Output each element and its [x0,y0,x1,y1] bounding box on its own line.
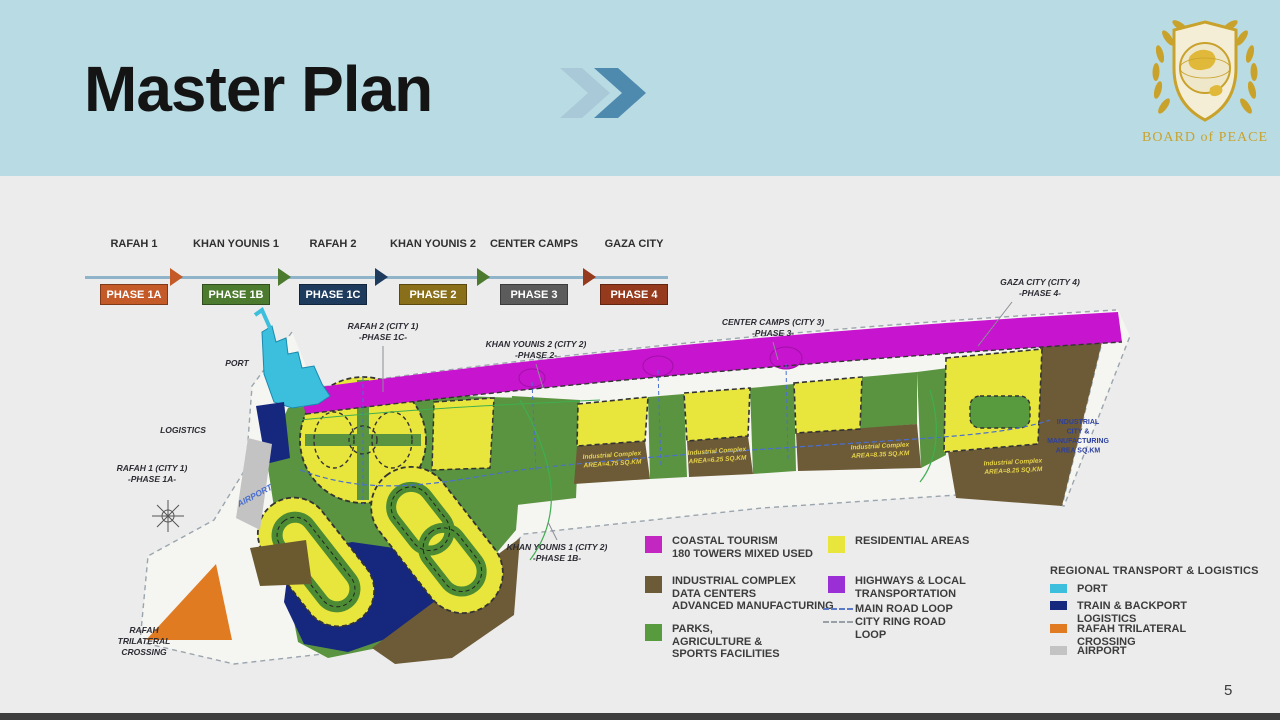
zone-olive-triangle [250,540,312,586]
legend-label: PORT [1077,583,1108,596]
legend-swatch [828,536,845,553]
timeline-arrow-icon [170,268,183,286]
compass-icon [152,500,184,532]
map-label-port: PORT [225,358,249,368]
legend-label: AIRPORT [1077,645,1127,658]
city-name: GAZA CITY [605,238,664,250]
header-band: Master Plan [0,0,1280,176]
zone-port [262,326,330,408]
timeline-arrow-icon [375,268,388,286]
map-label-logistics: LOGISTICS [160,425,206,435]
legend-swatch [828,576,845,593]
timeline-city-label: GAZA CITYCITY 4 [574,238,694,251]
city-name: RAFAH 1 [110,238,157,250]
chevron-right-icon [552,62,662,124]
legend-dash-sample [823,621,853,623]
legend-label: COASTAL TOURISM180 TOWERS MIXED USED [672,535,813,560]
legend-label: MAIN ROAD LOOP [855,603,953,616]
phase-badge: PHASE 1C [299,284,367,305]
bottom-bar [0,713,1280,720]
city-name: RAFAH 2 [309,238,356,250]
legend-label: RESIDENTIAL AREAS [855,535,969,548]
map-label-gaza-city: GAZA CITY (CITY 4)-PHASE 4- [1000,277,1080,298]
legend-swatch [645,536,662,553]
legend-dash-sample [823,608,853,610]
map-label-industrial-4: Industrial ComplexAREA=8.25 SQ.KM [983,457,1043,476]
phase-badge: PHASE 4 [600,284,668,305]
legend-label: TRAIN & BACKPORTLOGISTICS [1077,600,1187,625]
phase-badge: PHASE 1B [202,284,270,305]
page-number: 5 [1224,682,1232,699]
legend-label: CITY RING ROADLOOP [855,616,946,641]
phase-badge: PHASE 3 [500,284,568,305]
legend-label: HIGHWAYS & LOCALTRANSPORTATION [855,575,966,600]
zone-park-east [970,396,1030,428]
legend-swatch [1050,624,1067,633]
legend-label: PARKS,AGRICULTURE &SPORTS FACILITIES [672,623,780,661]
map-label-rafah2: RAFAH 2 (CITY 1)-PHASE 1C- [348,321,419,342]
legend-swatch [1050,584,1067,593]
legend-swatch [645,576,662,593]
slide: PORTLOGISTICSRAFAH 1 (CITY 1)-PHASE 1A-R… [0,0,1280,720]
timeline-arrow-icon [583,268,596,286]
phase-badge: PHASE 2 [399,284,467,305]
legend-swatch [645,624,662,641]
map-label-industrial-3: Industrial ComplexAREA=8.35 SQ.KM [850,441,910,460]
legend-label: INDUSTRIAL COMPLEXDATA CENTERSADVANCED M… [672,575,834,613]
board-of-peace-logo: BOARD of PEACE [1140,8,1270,158]
logo-caption: BOARD of PEACE [1142,130,1268,145]
map-label-rafah1: RAFAH 1 (CITY 1)-PHASE 1A- [117,463,188,484]
city-name: CENTER CAMPS [490,238,578,250]
timeline-arrow-icon [477,268,490,286]
port-breakwater [255,310,270,328]
legend-regional-title: REGIONAL TRANSPORT & LOGISTICS [1050,565,1259,577]
timeline-arrow-icon [278,268,291,286]
map-label-khan-younis-1: KHAN YOUNIS 1 (CITY 2)-PHASE 1B- [507,542,608,563]
legend-swatch [1050,646,1067,655]
legend-swatch [1050,601,1067,610]
city-name: KHAN YOUNIS 2 [390,238,476,250]
page-title: Master Plan [84,52,432,126]
city-name: KHAN YOUNIS 1 [193,238,279,250]
phase-badge: PHASE 1A [100,284,168,305]
